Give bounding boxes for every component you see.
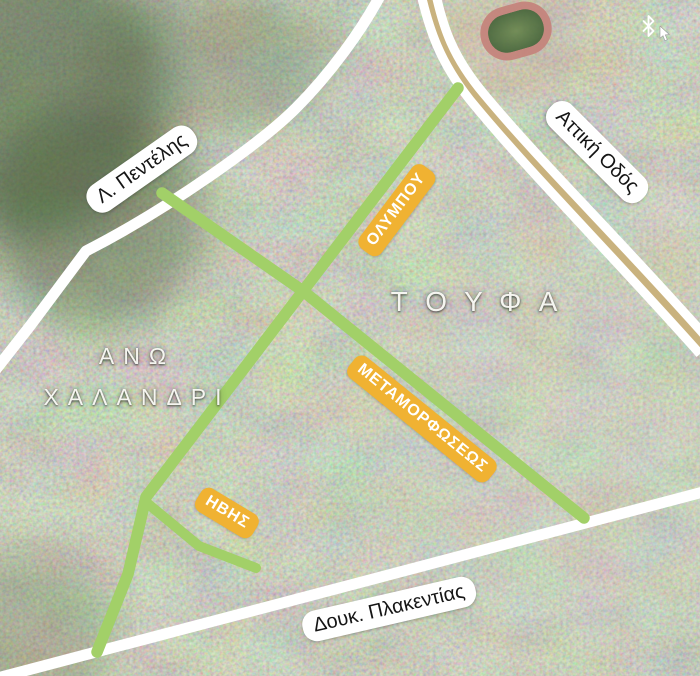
cursor-arrow-icon [659, 26, 672, 42]
map-canvas[interactable]: Λ. Πεντέλης Αττική Οδός Δουκ. Πλακεντίας… [0, 0, 700, 676]
bluetooth-icon [640, 12, 657, 40]
road-pentelis-line [0, 0, 381, 372]
area-label-line2: ΧΑΛΑΝΔΡΙ [43, 377, 230, 418]
area-label-line1: ΑΝΩ [43, 336, 230, 377]
area-label-toufa[interactable]: ΤΟΥΦΑ [391, 286, 576, 318]
area-label-ano-chalandri[interactable]: ΑΝΩ ΧΑΛΑΝΔΡΙ [43, 336, 230, 418]
road-plakentias-line [0, 492, 700, 676]
